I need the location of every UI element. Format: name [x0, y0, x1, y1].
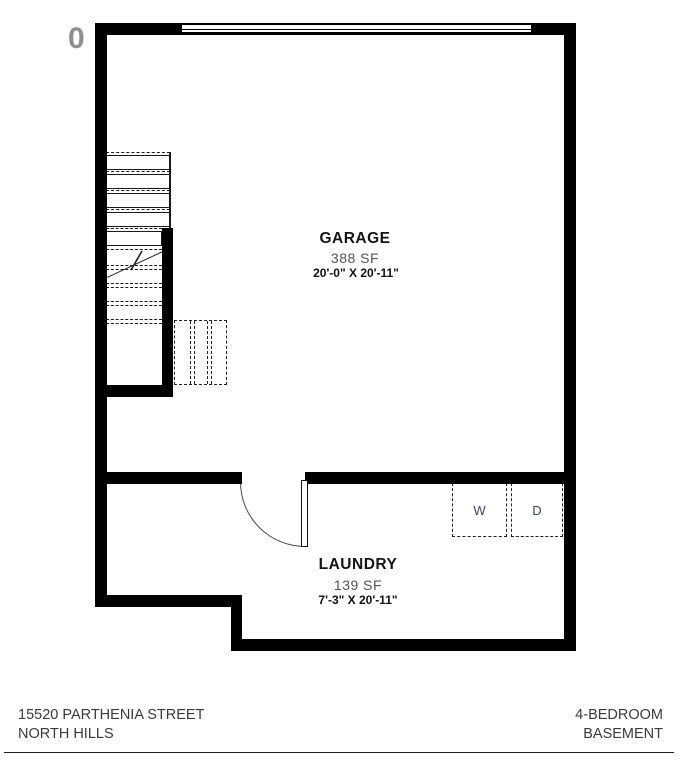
laundry-room-label: LAUNDRY	[319, 556, 398, 574]
wall-stair-inner	[162, 228, 173, 397]
stair-tread	[106, 193, 170, 208]
wall-laundry-top-right	[305, 472, 576, 484]
stair-tread	[106, 190, 170, 191]
stair-tread	[106, 305, 162, 306]
stair-tread	[106, 209, 170, 210]
garage-area-label: 388 SF	[331, 250, 379, 266]
garage-door	[182, 23, 531, 35]
mechanical-box-divider	[190, 321, 191, 384]
stair-tread	[106, 171, 170, 172]
door-swing-arc	[240, 482, 305, 547]
stair-tread	[106, 174, 170, 189]
mechanical-box-divider	[194, 321, 195, 384]
stair-tread	[106, 301, 162, 302]
laundry-area-label: 139 SF	[334, 577, 382, 593]
garage-dimensions-label: 20'-0" X 20'-11"	[313, 266, 399, 280]
mechanical-box-divider	[207, 321, 208, 384]
stair-tread	[106, 287, 162, 288]
stair-tread	[106, 212, 170, 227]
stair-tread	[106, 228, 162, 229]
wall-bottom	[231, 639, 576, 651]
mechanical-box	[174, 320, 227, 385]
dryer-label: D	[532, 503, 541, 518]
wall-top-left	[95, 23, 182, 35]
garage-door-line	[182, 29, 531, 31]
mechanical-box-divider	[211, 321, 212, 384]
garage-door-line	[182, 32, 531, 34]
watermark-digit: 0	[68, 24, 85, 54]
floor-plan: 0	[0, 0, 687, 773]
stair-tread	[106, 155, 170, 170]
stair-tread	[106, 231, 162, 246]
footer-plan-line1: 4-BEDROOM	[575, 706, 663, 725]
stair-tread	[106, 152, 170, 153]
stair-edge-line	[169, 152, 171, 230]
stair-tread	[106, 283, 162, 284]
wall-stair-bottom	[95, 385, 173, 397]
wall-laundry-top-left	[95, 472, 242, 484]
washer-box: W	[452, 483, 507, 537]
washer-label: W	[473, 503, 485, 518]
wall-right	[564, 23, 576, 651]
footer-address-line1: 15520 PARTHENIA STREET	[18, 706, 204, 725]
dryer-box: D	[511, 483, 563, 537]
laundry-dimensions-label: 7'-3" X 20'-11"	[318, 593, 397, 607]
wall-left	[95, 23, 107, 607]
stair-tread	[106, 319, 162, 320]
footer-plan-line2: BASEMENT	[575, 725, 663, 744]
stair-break-icon	[128, 250, 146, 272]
footer-address-line2: NORTH HILLS	[18, 725, 204, 744]
stair-tread	[106, 323, 162, 324]
wall-laundry-mid	[95, 595, 242, 607]
door-leaf	[301, 480, 308, 547]
garage-room-label: GARAGE	[319, 230, 390, 248]
footer-divider	[4, 752, 674, 753]
footer-plan-name: 4-BEDROOM BASEMENT	[575, 706, 663, 744]
footer-address: 15520 PARTHENIA STREET NORTH HILLS	[18, 706, 204, 744]
